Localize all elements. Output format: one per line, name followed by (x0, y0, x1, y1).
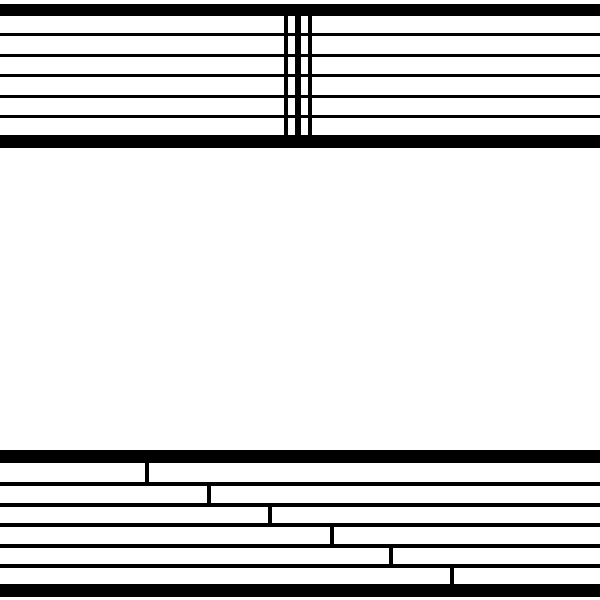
vertical-barline (308, 8, 312, 146)
thin-rule-line (0, 503, 600, 507)
thick-bar-line (0, 584, 600, 597)
thick-bar-line (0, 450, 600, 463)
staircase-step-tick (330, 524, 334, 547)
staircase-step-tick (145, 455, 149, 485)
staircase-step-tick (450, 565, 454, 592)
vertical-barline (284, 8, 288, 146)
vertical-barline (295, 8, 301, 146)
staircase-step-tick (389, 545, 393, 567)
figure-canvas (0, 0, 600, 600)
thin-rule-line (0, 564, 600, 568)
staircase-step-tick (268, 504, 272, 527)
staircase-step-tick (207, 483, 211, 506)
thin-rule-line (0, 482, 600, 486)
thin-rule-line (0, 544, 600, 548)
thin-rule-line (0, 523, 600, 527)
